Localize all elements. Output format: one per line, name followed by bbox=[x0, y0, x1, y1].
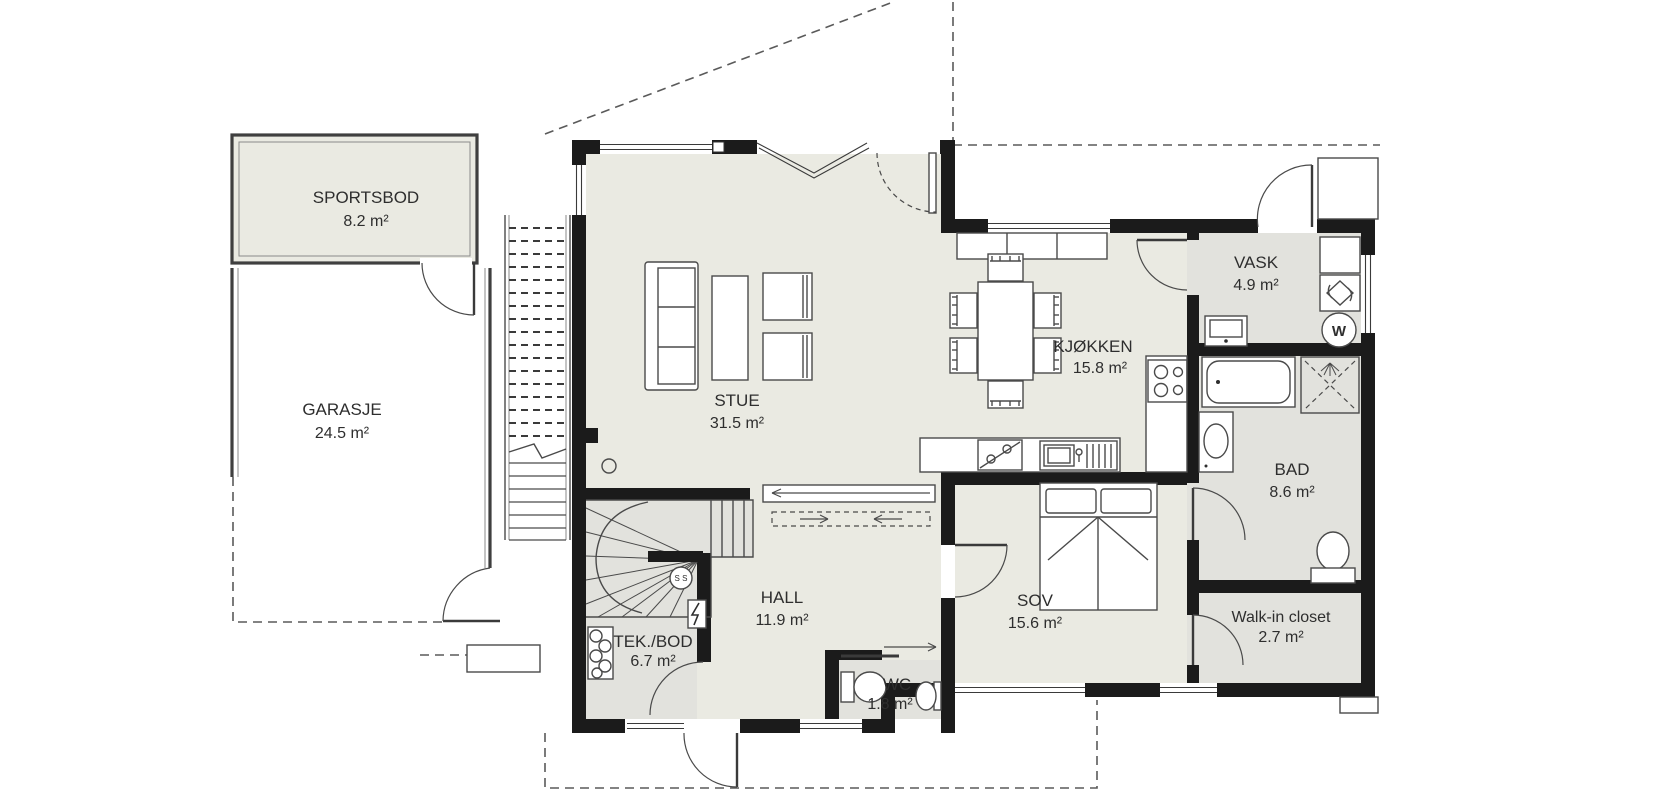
garasje-room: GARASJE 24.5 m² bbox=[232, 268, 500, 621]
room-label-vask: VASK bbox=[1234, 253, 1279, 272]
electrical-panel bbox=[688, 600, 706, 628]
room-label-hall: HALL bbox=[761, 588, 804, 607]
corner-step bbox=[1340, 697, 1378, 713]
room-label-kjokken: KJØKKEN bbox=[1053, 337, 1132, 356]
entry-porch bbox=[1318, 158, 1378, 219]
room-area-garasje: 24.5 m² bbox=[315, 425, 370, 442]
dining-chair bbox=[1034, 293, 1061, 328]
room-label-sov: SOV bbox=[1017, 591, 1054, 610]
floor-plan-page: SPORTSBOD 8.2 m² GARASJE 24.5 m² bbox=[0, 0, 1670, 800]
room-area-tek: 6.7 m² bbox=[630, 653, 676, 670]
armchair bbox=[763, 273, 812, 320]
room-label-garasje: GARASJE bbox=[302, 400, 381, 419]
kitchen-counter bbox=[920, 438, 1120, 472]
room-area-kjokken: 15.8 m² bbox=[1073, 360, 1128, 377]
room-label-stue: STUE bbox=[714, 391, 759, 410]
room-label-wc: WC bbox=[883, 675, 911, 694]
bathtub bbox=[1202, 357, 1295, 407]
room-area-hall: 11.9 m² bbox=[755, 612, 809, 629]
room-label-sportsbod: SPORTSBOD bbox=[313, 188, 419, 207]
svg-text:S S: S S bbox=[675, 574, 688, 583]
floor-plan-drawing: SPORTSBOD 8.2 m² GARASJE 24.5 m² bbox=[0, 0, 1670, 800]
side-entry-step bbox=[467, 645, 540, 672]
dining-chair bbox=[950, 338, 977, 373]
exterior-staircase bbox=[467, 215, 570, 672]
sportsbod-room: SPORTSBOD 8.2 m² bbox=[232, 135, 477, 315]
room-area-sportsbod: 8.2 m² bbox=[343, 213, 389, 230]
bathroom-sink bbox=[1199, 412, 1233, 472]
wall-vent-marker bbox=[713, 142, 724, 152]
room-area-vask: 4.9 m² bbox=[1233, 277, 1279, 294]
room-label-bad: BAD bbox=[1275, 460, 1310, 479]
room-area-walkin: 2.7 m² bbox=[1258, 629, 1304, 646]
water-heater bbox=[588, 627, 613, 679]
room-area-sov: 15.6 m² bbox=[1008, 615, 1063, 632]
laundry-sink bbox=[1205, 316, 1247, 346]
room-area-stue: 31.5 m² bbox=[710, 415, 765, 432]
tall-cabinet bbox=[1320, 237, 1360, 273]
washing-machine: W bbox=[1322, 313, 1356, 347]
dining-chair bbox=[988, 381, 1023, 408]
sofa bbox=[645, 262, 698, 390]
terrace-door-leaf bbox=[929, 153, 936, 213]
wc-sink bbox=[916, 682, 941, 710]
room-area-bad: 8.6 m² bbox=[1269, 484, 1315, 501]
ventilation-unit bbox=[1320, 275, 1360, 311]
stair-break-line bbox=[509, 444, 566, 458]
dining-chair bbox=[988, 254, 1023, 281]
double-bed bbox=[1040, 483, 1157, 610]
stove-counter bbox=[1146, 356, 1187, 472]
dining-table bbox=[978, 282, 1033, 380]
room-area-wc: 1.8 m² bbox=[867, 696, 913, 713]
armchair bbox=[763, 333, 812, 380]
svg-text:W: W bbox=[1332, 323, 1347, 340]
coffee-table bbox=[712, 276, 748, 380]
room-label-tek: TEK./BOD bbox=[613, 632, 692, 651]
dining-chair bbox=[950, 293, 977, 328]
upper-counter bbox=[957, 233, 1107, 259]
room-label-walkin: Walk-in closet bbox=[1232, 609, 1332, 626]
